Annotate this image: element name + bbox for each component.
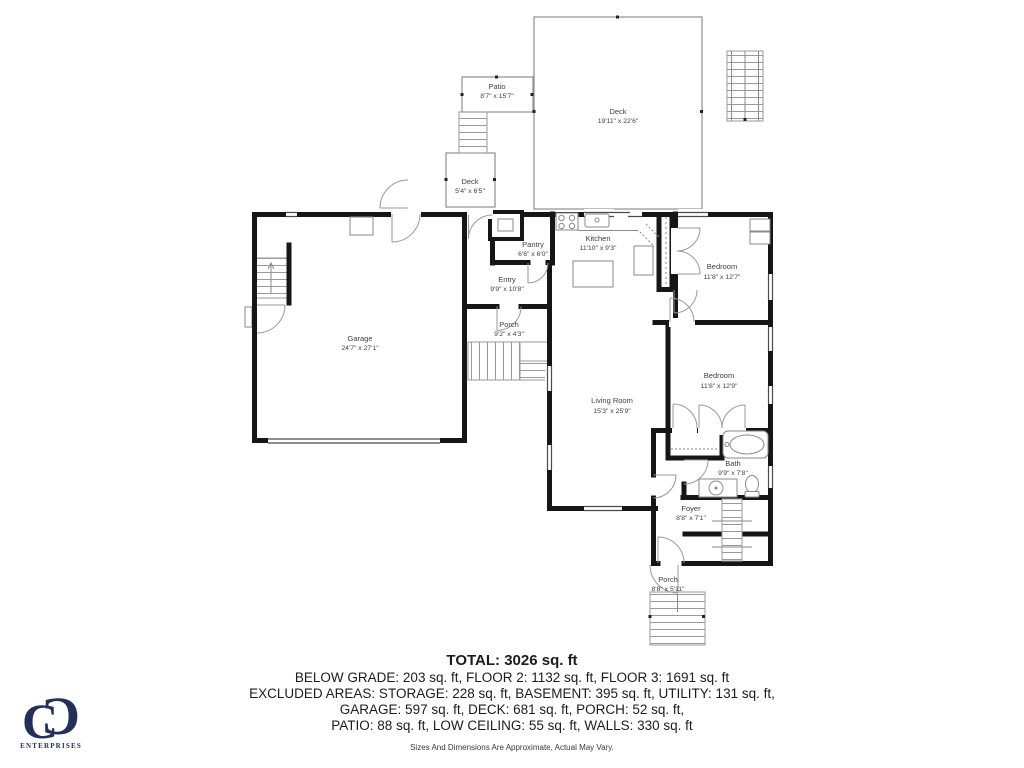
living-left-window-2 [545,445,554,470]
garage-walls [255,215,465,441]
summary-disclaimer: Sizes And Dimensions Are Approximate, Ac… [410,743,614,752]
bedroom2-right-window-2 [766,386,775,404]
garage-window [286,210,297,219]
pantry-door [528,263,548,283]
fixtures [350,213,770,497]
deck-stairs [459,112,487,153]
living-foyer-door [654,475,677,498]
room-label-garage: Garage [347,334,372,343]
floorplan-drawing: Patio 8'7" x 15'7" Deck 19'11" x 22'6" D… [0,0,1024,768]
room-dims-bath: 9'9" x 7'8" [718,470,748,477]
room-dims-bedroom2: 11'8" x 12'9" [701,383,738,390]
room-label-foyer: Foyer [681,504,701,513]
area-summary: TOTAL: 3026 sq. ft BELOW GRADE: 203 sq. … [249,652,775,752]
kitchen-sink-icon [585,214,609,227]
logo-monogram-c-mirrored: C [41,686,80,746]
front-door-inner [658,537,684,563]
exterior-step [245,307,252,327]
summary-line-4: PATIO: 88 sq. ft, LOW CEILING: 55 sq. ft… [331,718,693,733]
room-dims-bedroom1: 11'8" x 12'7" [704,274,741,281]
garage-side-door [257,305,285,333]
exterior-stairs-topright [727,51,763,121]
entry-door-opening [467,209,493,219]
toilet-icon [745,476,759,498]
room-dims-patio: 8'7" x 15'7" [480,93,514,100]
garage-top-door-outer [380,180,408,208]
room-dims-entry: 9'9" x 10'8" [490,286,524,293]
summary-line-3: GARAGE: 597 sq. ft, DECK: 681 sq. ft, PO… [340,702,684,717]
stove-icon [556,213,578,230]
room-label-bedroom1: Bedroom [707,262,737,271]
outdoor-structures [245,17,702,327]
room-label-kitchen: Kitchen [585,234,610,243]
bathtub-icon [723,431,768,458]
porch-stairs [650,592,705,645]
closet-shelf-1 [750,219,770,231]
garage-door-opening-top [391,209,421,219]
summary-total: TOTAL: 3026 sq. ft [446,652,577,669]
bedroom2-door [673,404,697,428]
entry-utility-cell [490,212,522,239]
vanity-sink-icon [699,479,737,497]
floorplan-page: Patio 8'7" x 15'7" Deck 19'11" x 22'6" D… [0,0,1024,768]
closet-shelf-2 [750,232,770,244]
room-dims-foyer: 8'8" x 7'1" [676,515,706,522]
bedroom2-door-opening [672,426,697,435]
summary-line-1: BELOW GRADE: 203 sq. ft, FLOOR 2: 1132 s… [295,670,729,685]
room-label-porch-mid: Porch [499,320,519,329]
garage-vehicle-door [268,436,440,445]
company-logo: C C ENTERPRISES [20,686,82,750]
room-dims-kitchen: 11'10" x 9'3" [580,245,617,252]
room-label-bath: Bath [725,459,740,468]
room-label-patio: Patio [488,82,505,91]
room-label-pantry: Pantry [522,240,544,249]
room-dims-deck-large: 19'11" x 22'6" [598,118,639,125]
kitchen-sliding-door [614,210,642,219]
living-left-window-1 [545,366,554,391]
room-label-bedroom2: Bedroom [704,371,734,380]
bedroom1-french-doors [677,228,700,274]
refrigerator-icon [634,246,653,275]
room-label-deck-small: Deck [461,177,478,186]
room-dims-porch-bottom: 8'8" x 5'11" [652,586,686,593]
summary-line-2: EXCLUDED AREAS: STORAGE: 228 sq. ft, BAS… [249,686,775,701]
room-dims-living-room: 15'3" x 25'9" [593,408,631,415]
room-label-deck-large: Deck [609,107,626,116]
bedroom2-right-window-1 [766,327,775,351]
room-dims-porch-mid: 9'2" x 4'3" [494,331,524,338]
garage-stairs [255,258,287,298]
living-bottom-window [584,504,622,513]
kitchen-island [573,261,613,287]
room-dims-pantry: 6'6" x 6'0" [518,251,548,258]
garage-storage-box [350,217,373,235]
bedroom2-closet-doors [699,405,745,428]
room-label-porch-bottom: Porch [658,575,678,584]
logo-company-name: ENTERPRISES [20,742,82,750]
room-label-entry: Entry [498,275,516,284]
room-dims-garage: 24'7" x 27'1" [341,345,379,352]
bedroom1-top-window [678,209,708,219]
basement-stairs [468,342,548,380]
bath-right-window [766,466,775,488]
room-label-living-room: Living Room [591,396,633,405]
bedroom1-door-opening [669,318,695,327]
foyer-stairs [712,499,752,561]
room-dims-deck-small: 5'4" x 6'5" [455,188,485,195]
bedroom1-right-window [766,274,775,300]
